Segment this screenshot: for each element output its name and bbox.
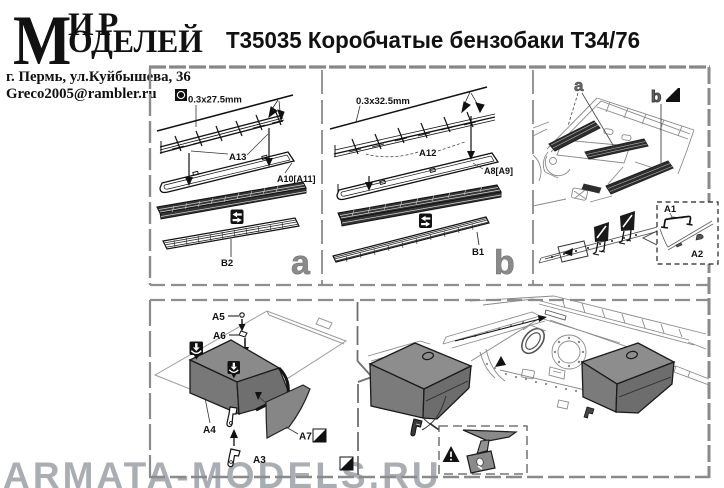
svg-text:A7: A7	[299, 432, 312, 443]
svg-text:b: b	[651, 87, 661, 106]
svg-text:A3: A3	[253, 455, 266, 466]
svg-text:A4: A4	[203, 425, 216, 436]
svg-text:b: b	[494, 244, 515, 282]
svg-text:0.3x27.5mm: 0.3x27.5mm	[188, 95, 242, 106]
svg-text:A8[A9]: A8[A9]	[484, 166, 513, 176]
svg-text:0.3x32.5mm: 0.3x32.5mm	[356, 96, 410, 107]
svg-text:A6: A6	[213, 331, 226, 342]
svg-text:B2: B2	[221, 258, 233, 269]
svg-text:a: a	[574, 76, 584, 95]
svg-text:A13: A13	[229, 152, 246, 163]
svg-text:A2: A2	[691, 249, 703, 260]
svg-text:A12: A12	[419, 148, 436, 159]
svg-text:a: a	[291, 244, 311, 282]
svg-text:A10[A11]: A10[A11]	[277, 174, 316, 184]
svg-text:A5: A5	[212, 312, 225, 323]
svg-text:B1: B1	[472, 247, 485, 258]
